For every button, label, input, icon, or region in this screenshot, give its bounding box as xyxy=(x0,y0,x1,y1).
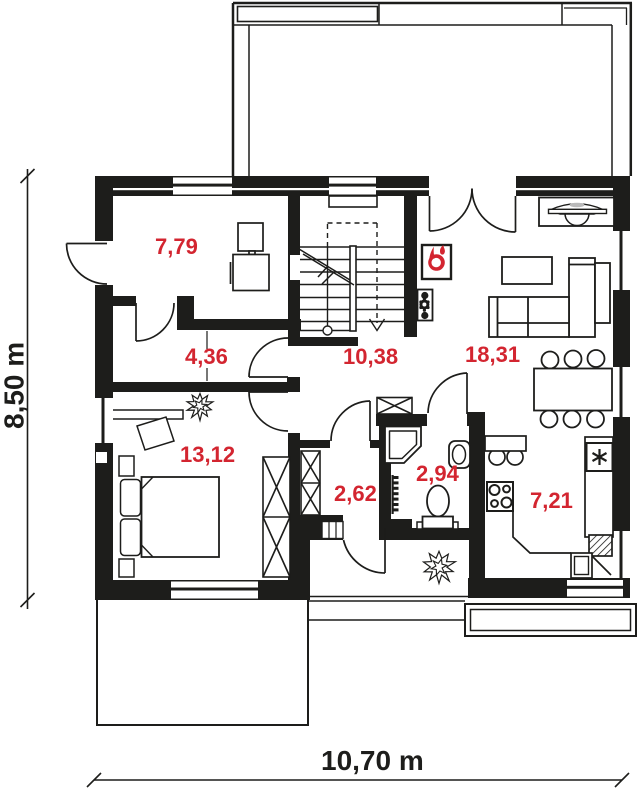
svg-text:2,94: 2,94 xyxy=(416,461,460,486)
svg-text:7,79: 7,79 xyxy=(155,234,198,259)
svg-text:2,62: 2,62 xyxy=(334,481,377,506)
svg-text:4,36: 4,36 xyxy=(185,344,228,369)
svg-text:10,70 m: 10,70 m xyxy=(321,745,424,776)
svg-text:7,21: 7,21 xyxy=(530,488,573,513)
svg-text:13,12: 13,12 xyxy=(180,442,235,467)
svg-text:8,50 m: 8,50 m xyxy=(0,342,30,429)
svg-text:10,38: 10,38 xyxy=(343,344,398,369)
svg-text:18,31: 18,31 xyxy=(465,342,520,367)
